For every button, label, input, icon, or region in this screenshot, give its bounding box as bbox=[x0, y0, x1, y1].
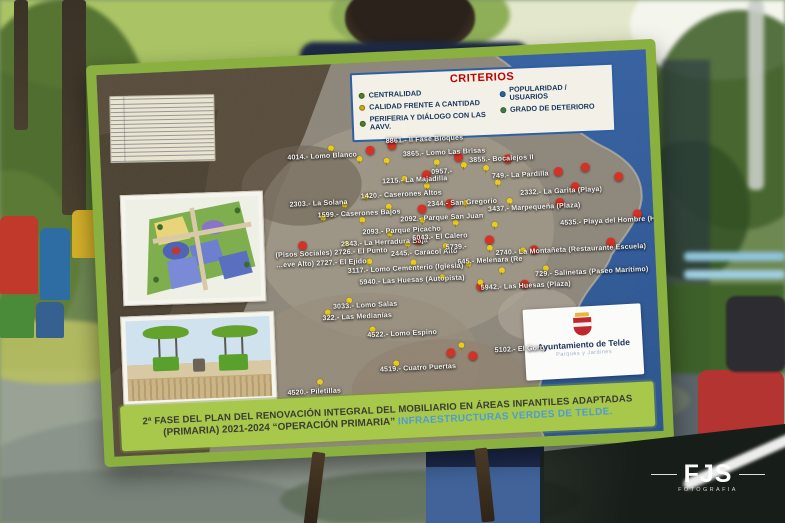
map-label: 2344.- San Gregorio bbox=[427, 198, 497, 208]
bag-on-chair bbox=[726, 296, 785, 372]
map-label: 645.- Melenara (Re bbox=[457, 256, 522, 266]
map-label: 5942.- Las Huesas (Plaza) bbox=[481, 281, 571, 292]
map-label: 2332.- La Garita (Playa) bbox=[520, 185, 602, 196]
map-label: 2740.- La Montañeta (Restaurante Escuela… bbox=[495, 243, 646, 257]
map-label: 4522.- Lomo Espino bbox=[367, 329, 437, 339]
map-label: 1420.- Caserones Altos bbox=[361, 189, 442, 200]
map-label: 5102.- El Goro bbox=[495, 345, 545, 354]
map-label: 3855.- Bocalejos II bbox=[469, 154, 534, 164]
map-label: 322.- Las Medianías bbox=[322, 312, 392, 322]
map-label: 6043.- El Calero bbox=[412, 232, 468, 242]
watermark-brand: FJS bbox=[684, 462, 733, 486]
watermark-line bbox=[651, 474, 677, 475]
watermark-line bbox=[739, 474, 765, 475]
playground-fence-green bbox=[0, 296, 34, 338]
playground-fence-blue bbox=[40, 228, 70, 300]
map-label: 4519.- Cuatro Puertas bbox=[380, 363, 456, 374]
map-label: (Pisos Sociales) 2726.- El Punto bbox=[275, 247, 387, 259]
watermark-subtitle: FOTOGRAFIA bbox=[648, 487, 768, 493]
map-label: 749.- La Pardilla bbox=[492, 171, 549, 181]
map-label: 4520.- Piletillas bbox=[287, 387, 341, 397]
tree-trunk bbox=[14, 0, 28, 130]
map-label: 1599.- Caserones Bajos bbox=[318, 208, 401, 219]
map-label: 5739.- bbox=[446, 243, 467, 251]
photographer-watermark: FJS FOTOGRAFIA bbox=[648, 462, 768, 493]
map-label: 5940.- Las Huesas (Autopista) bbox=[359, 274, 465, 286]
playground-fence-red bbox=[0, 216, 38, 294]
map-label: 729.- Salinetas (Paseo Marítimo) bbox=[535, 266, 649, 278]
map-label: 3437.- Marpequeña (Plaza) bbox=[488, 202, 581, 213]
map-label: 1215.- La Majadilla bbox=[382, 176, 448, 186]
satellite-map: CRITERIOS CENTRALIDADCALIDAD FRENTE A CA… bbox=[96, 49, 663, 456]
map-label: 3033.- Lomo Salas bbox=[333, 300, 398, 310]
photo-scene: CRITERIOS CENTRALIDADCALIDAD FRENTE A CA… bbox=[0, 0, 785, 523]
playground-fence-blue2 bbox=[36, 302, 64, 338]
map-label: 2303.- La Solana bbox=[290, 199, 348, 209]
map-label: 4535.- Playa del Hombre (Hoya Poz bbox=[560, 214, 664, 227]
tree-trunk bbox=[62, 0, 86, 215]
map-label: 4014.- Lomo Blanco bbox=[287, 151, 357, 161]
poster-board: CRITERIOS CENTRALIDADCALIDAD FRENTE A CA… bbox=[86, 39, 674, 467]
map-label: 8861.- II Fase Bloques bbox=[386, 135, 464, 146]
map-label: 0957.- bbox=[431, 168, 452, 176]
map-label: 2092.- Parque San Juan bbox=[400, 212, 483, 223]
